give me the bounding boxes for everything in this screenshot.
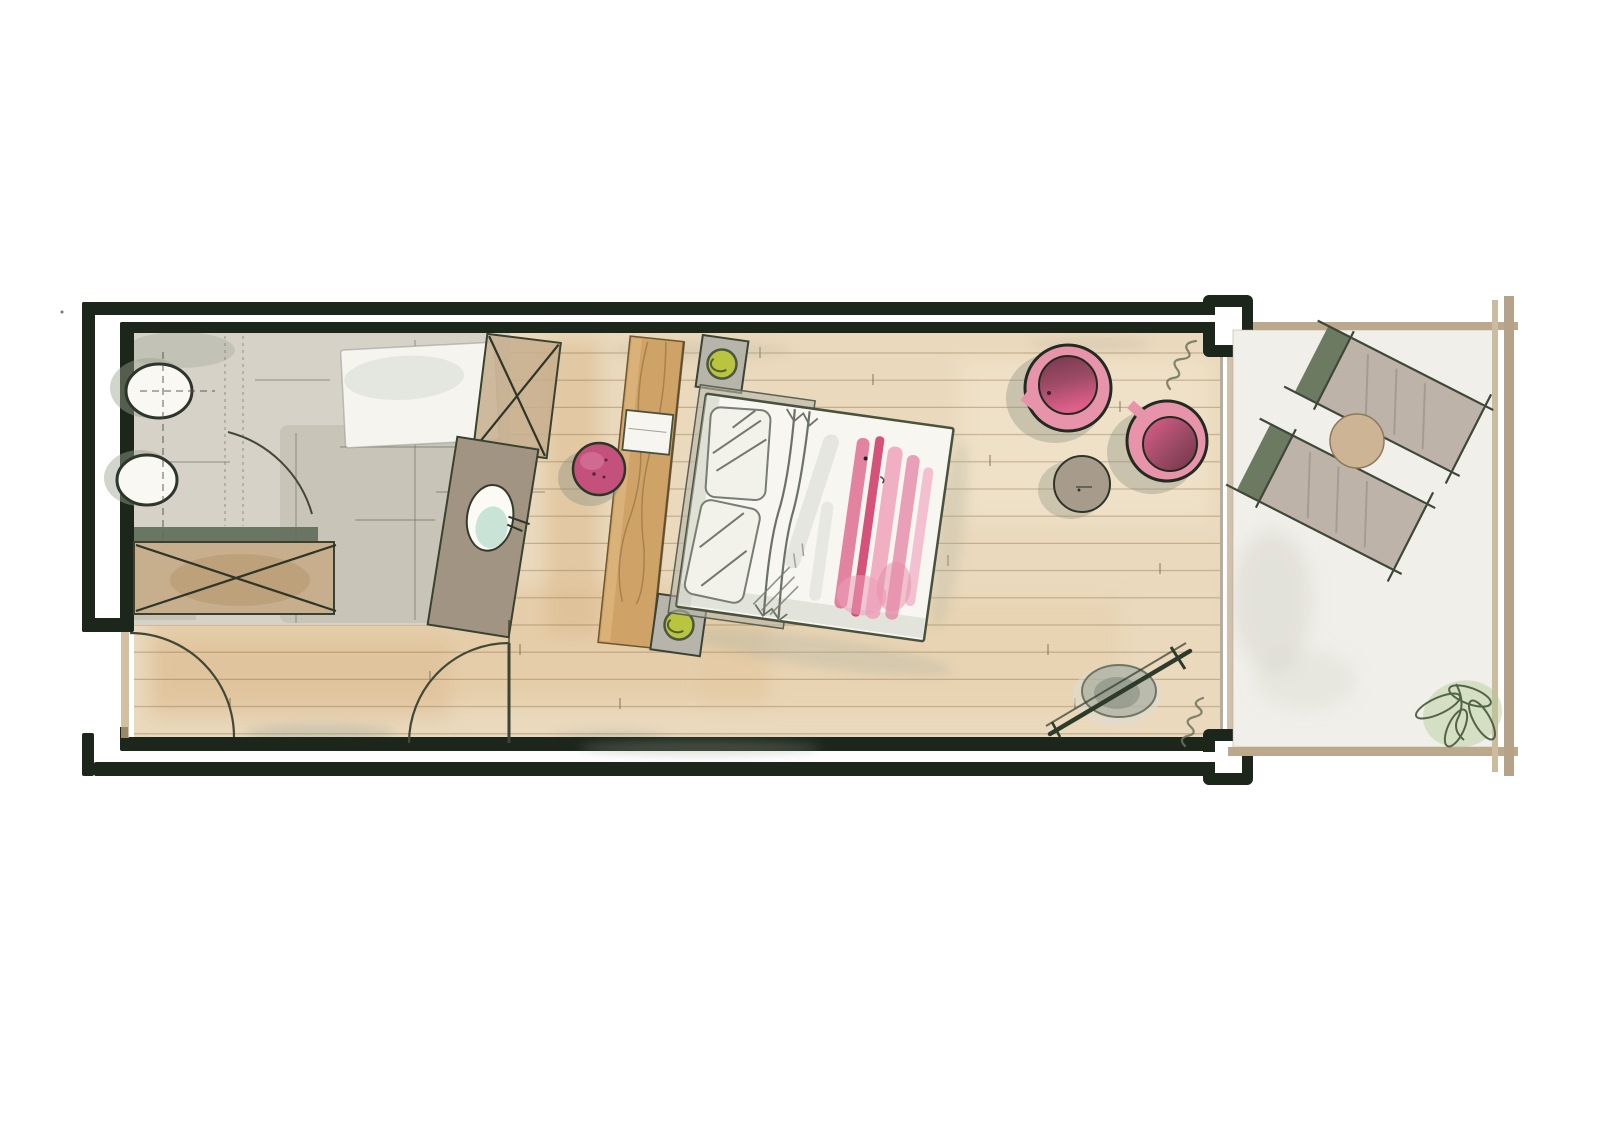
left-wall-outer bbox=[82, 302, 95, 632]
headboard-shelf bbox=[622, 410, 673, 455]
glazing-line bbox=[1220, 357, 1223, 729]
entrance-door-leaf bbox=[121, 632, 129, 738]
cabinet-x bbox=[134, 542, 336, 614]
counter bbox=[134, 527, 318, 542]
terrace-left-border bbox=[1227, 357, 1233, 729]
top-wall-outer bbox=[82, 302, 1205, 315]
floor-plan-page bbox=[0, 0, 1600, 1131]
terrace-bottom-border bbox=[1228, 747, 1518, 756]
floor-plan-drawing bbox=[0, 0, 1600, 1131]
bottom-left-stub bbox=[82, 733, 94, 776]
terrace-table bbox=[1330, 414, 1384, 468]
shower bbox=[473, 334, 561, 458]
nightstand-top bbox=[696, 335, 749, 393]
terrace-top-border bbox=[1253, 322, 1518, 330]
pencil-speck bbox=[61, 311, 64, 314]
terrace bbox=[1220, 296, 1518, 776]
top-wall-inner bbox=[120, 322, 1205, 333]
left-wall-cap bbox=[82, 618, 134, 632]
terrace-right-rail-outer bbox=[1504, 296, 1514, 776]
bed bbox=[668, 385, 955, 649]
bottom-wall-outer bbox=[94, 762, 1205, 776]
